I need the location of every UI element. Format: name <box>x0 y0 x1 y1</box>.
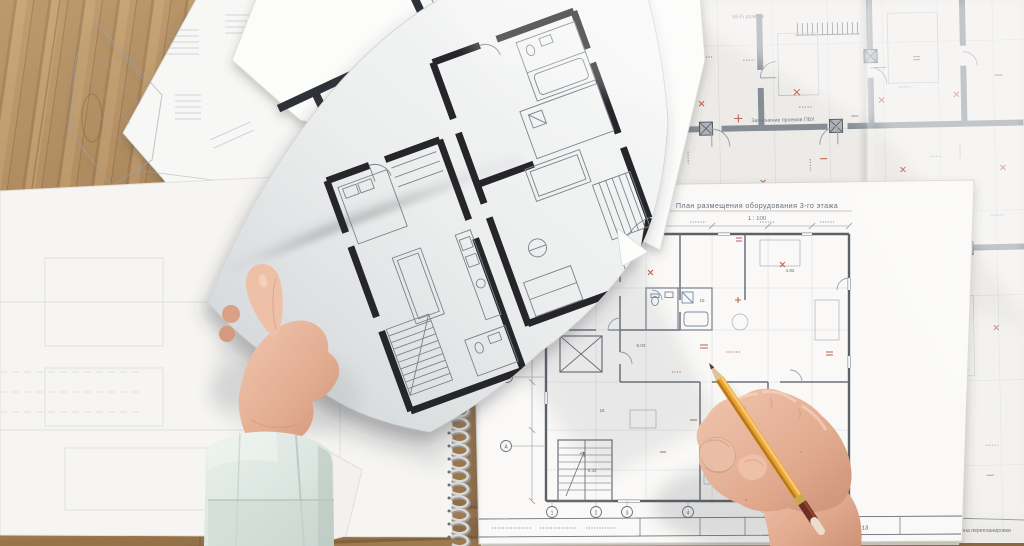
sheet-number: 13 <box>862 526 868 532</box>
plan-title: План размещения оборудования 3-го этажа <box>676 201 838 210</box>
grid-bubble: 1 <box>551 510 554 516</box>
pencil-ferrule <box>798 496 802 503</box>
fingertip <box>219 326 235 342</box>
grid-bubble: 3 <box>626 510 629 516</box>
blueprint-caption: Зона перепланировки <box>958 528 1011 534</box>
svg-text:4.82: 4.82 <box>786 268 795 273</box>
freckle <box>745 499 747 501</box>
architect-desk-photo: Wi-Fi розетка Заполнение проемов ПВХ W-1… <box>0 0 1024 546</box>
grid-bubble: 2 <box>595 510 598 516</box>
svg-text:15: 15 <box>699 298 705 303</box>
pencil-end-cap <box>814 521 821 531</box>
plan-scale: 1 : 100 <box>748 216 767 222</box>
fingertip <box>222 305 240 323</box>
cuff-second-fold <box>208 500 334 546</box>
